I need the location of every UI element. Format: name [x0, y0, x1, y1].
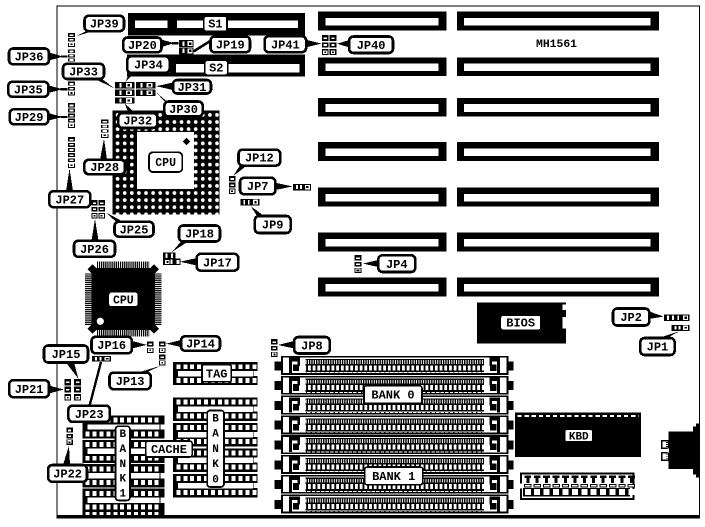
- svg-text:BANK 1: BANK 1: [372, 470, 415, 484]
- svg-text:JP29: JP29: [15, 111, 44, 125]
- svg-text:A: A: [212, 429, 219, 441]
- svg-text:JP27: JP27: [55, 193, 84, 207]
- svg-text:BIOS: BIOS: [506, 317, 535, 331]
- svg-text:JP17: JP17: [203, 256, 232, 270]
- svg-text:JP39: JP39: [90, 18, 119, 32]
- svg-text:JP14: JP14: [186, 338, 215, 352]
- svg-text:JP9: JP9: [262, 219, 284, 233]
- svg-text:KBD: KBD: [569, 432, 589, 444]
- svg-text:B: B: [212, 414, 219, 426]
- svg-text:CPU: CPU: [155, 157, 176, 170]
- svg-text:JP30: JP30: [169, 103, 198, 117]
- svg-text:K: K: [212, 459, 219, 471]
- svg-text:JP22: JP22: [53, 468, 82, 482]
- svg-text:JP34: JP34: [134, 59, 163, 73]
- svg-text:JP32: JP32: [123, 115, 152, 129]
- svg-text:JP20: JP20: [128, 39, 157, 53]
- svg-text:JP41: JP41: [271, 38, 300, 52]
- svg-text:JP31: JP31: [178, 81, 207, 95]
- svg-text:N: N: [212, 444, 219, 456]
- svg-text:S1: S1: [208, 18, 222, 32]
- svg-text:JP21: JP21: [15, 383, 44, 397]
- svg-text:TAG: TAG: [206, 367, 228, 381]
- svg-text:JP19: JP19: [216, 39, 245, 53]
- svg-text:JP8: JP8: [301, 339, 323, 353]
- svg-text:JP28: JP28: [90, 161, 119, 175]
- svg-text:JP12: JP12: [245, 152, 274, 166]
- svg-text:JP40: JP40: [357, 39, 386, 53]
- svg-text:K: K: [119, 474, 126, 486]
- svg-text:JP35: JP35: [14, 83, 43, 97]
- svg-text:BANK 0: BANK 0: [371, 389, 414, 403]
- svg-text:JP26: JP26: [80, 243, 109, 257]
- svg-text:1: 1: [119, 488, 126, 500]
- svg-text:JP15: JP15: [52, 348, 81, 362]
- svg-text:JP1: JP1: [647, 341, 669, 355]
- svg-text:A: A: [119, 444, 126, 456]
- svg-text:0: 0: [212, 474, 219, 486]
- svg-text:JP18: JP18: [185, 228, 214, 242]
- svg-text:JP23: JP23: [75, 408, 104, 422]
- svg-text:JP16: JP16: [97, 339, 126, 353]
- svg-text:JP4: JP4: [386, 258, 408, 272]
- svg-text:JP13: JP13: [116, 375, 145, 389]
- svg-text:JP2: JP2: [620, 311, 642, 325]
- svg-text:CPU: CPU: [113, 294, 134, 307]
- svg-text:JP7: JP7: [247, 180, 269, 194]
- svg-text:CACHE: CACHE: [151, 443, 187, 457]
- svg-text:JP36: JP36: [15, 51, 44, 65]
- svg-text:B: B: [119, 429, 126, 441]
- svg-text:JP33: JP33: [69, 66, 98, 80]
- svg-text:N: N: [119, 459, 126, 471]
- svg-text:MH1561: MH1561: [536, 39, 577, 51]
- svg-text:S2: S2: [209, 62, 223, 76]
- svg-text:JP25: JP25: [120, 223, 149, 237]
